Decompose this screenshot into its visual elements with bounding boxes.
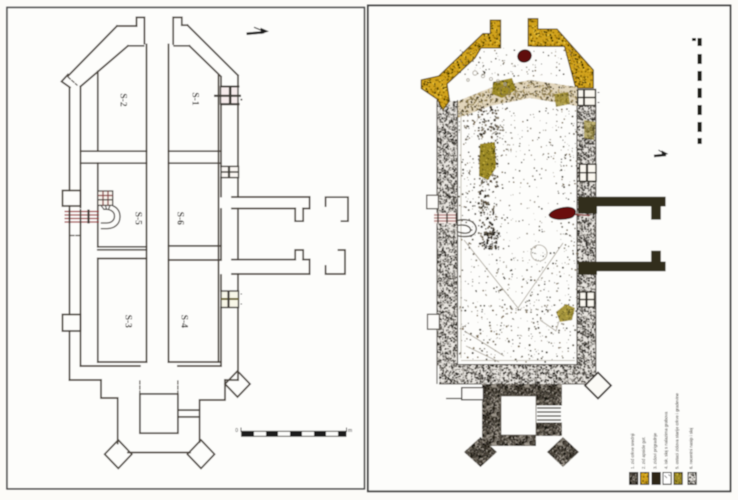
svg-text:S-6: S-6	[175, 212, 185, 225]
svg-text:S-1: S-1	[190, 92, 200, 105]
svg-text:0: 0	[235, 428, 238, 434]
svg-text:S-5: S-5	[132, 212, 142, 225]
svg-text:6. recentni nasip i sloj: 6. recentni nasip i sloj	[689, 428, 694, 469]
svg-text:2. zid apside got.: 2. zid apside got.	[641, 437, 646, 470]
svg-text:3. zidovi prigradnje: 3. zidovi prigradnje	[653, 432, 658, 469]
svg-text:S-3: S-3	[123, 315, 133, 328]
svg-text:S-4: S-4	[179, 315, 189, 328]
svg-text:5. ostaci zidova starije crkve: 5. ostaci zidova starije crkve i gradevi…	[675, 392, 680, 469]
svg-text:m: m	[348, 428, 352, 434]
svg-text:S-2: S-2	[118, 93, 128, 106]
svg-text:4. isk. sloj s nalazima grobov: 4. isk. sloj s nalazima grobova	[664, 411, 669, 469]
svg-text:1. zid crkve srednji: 1. zid crkve srednji	[630, 433, 635, 469]
